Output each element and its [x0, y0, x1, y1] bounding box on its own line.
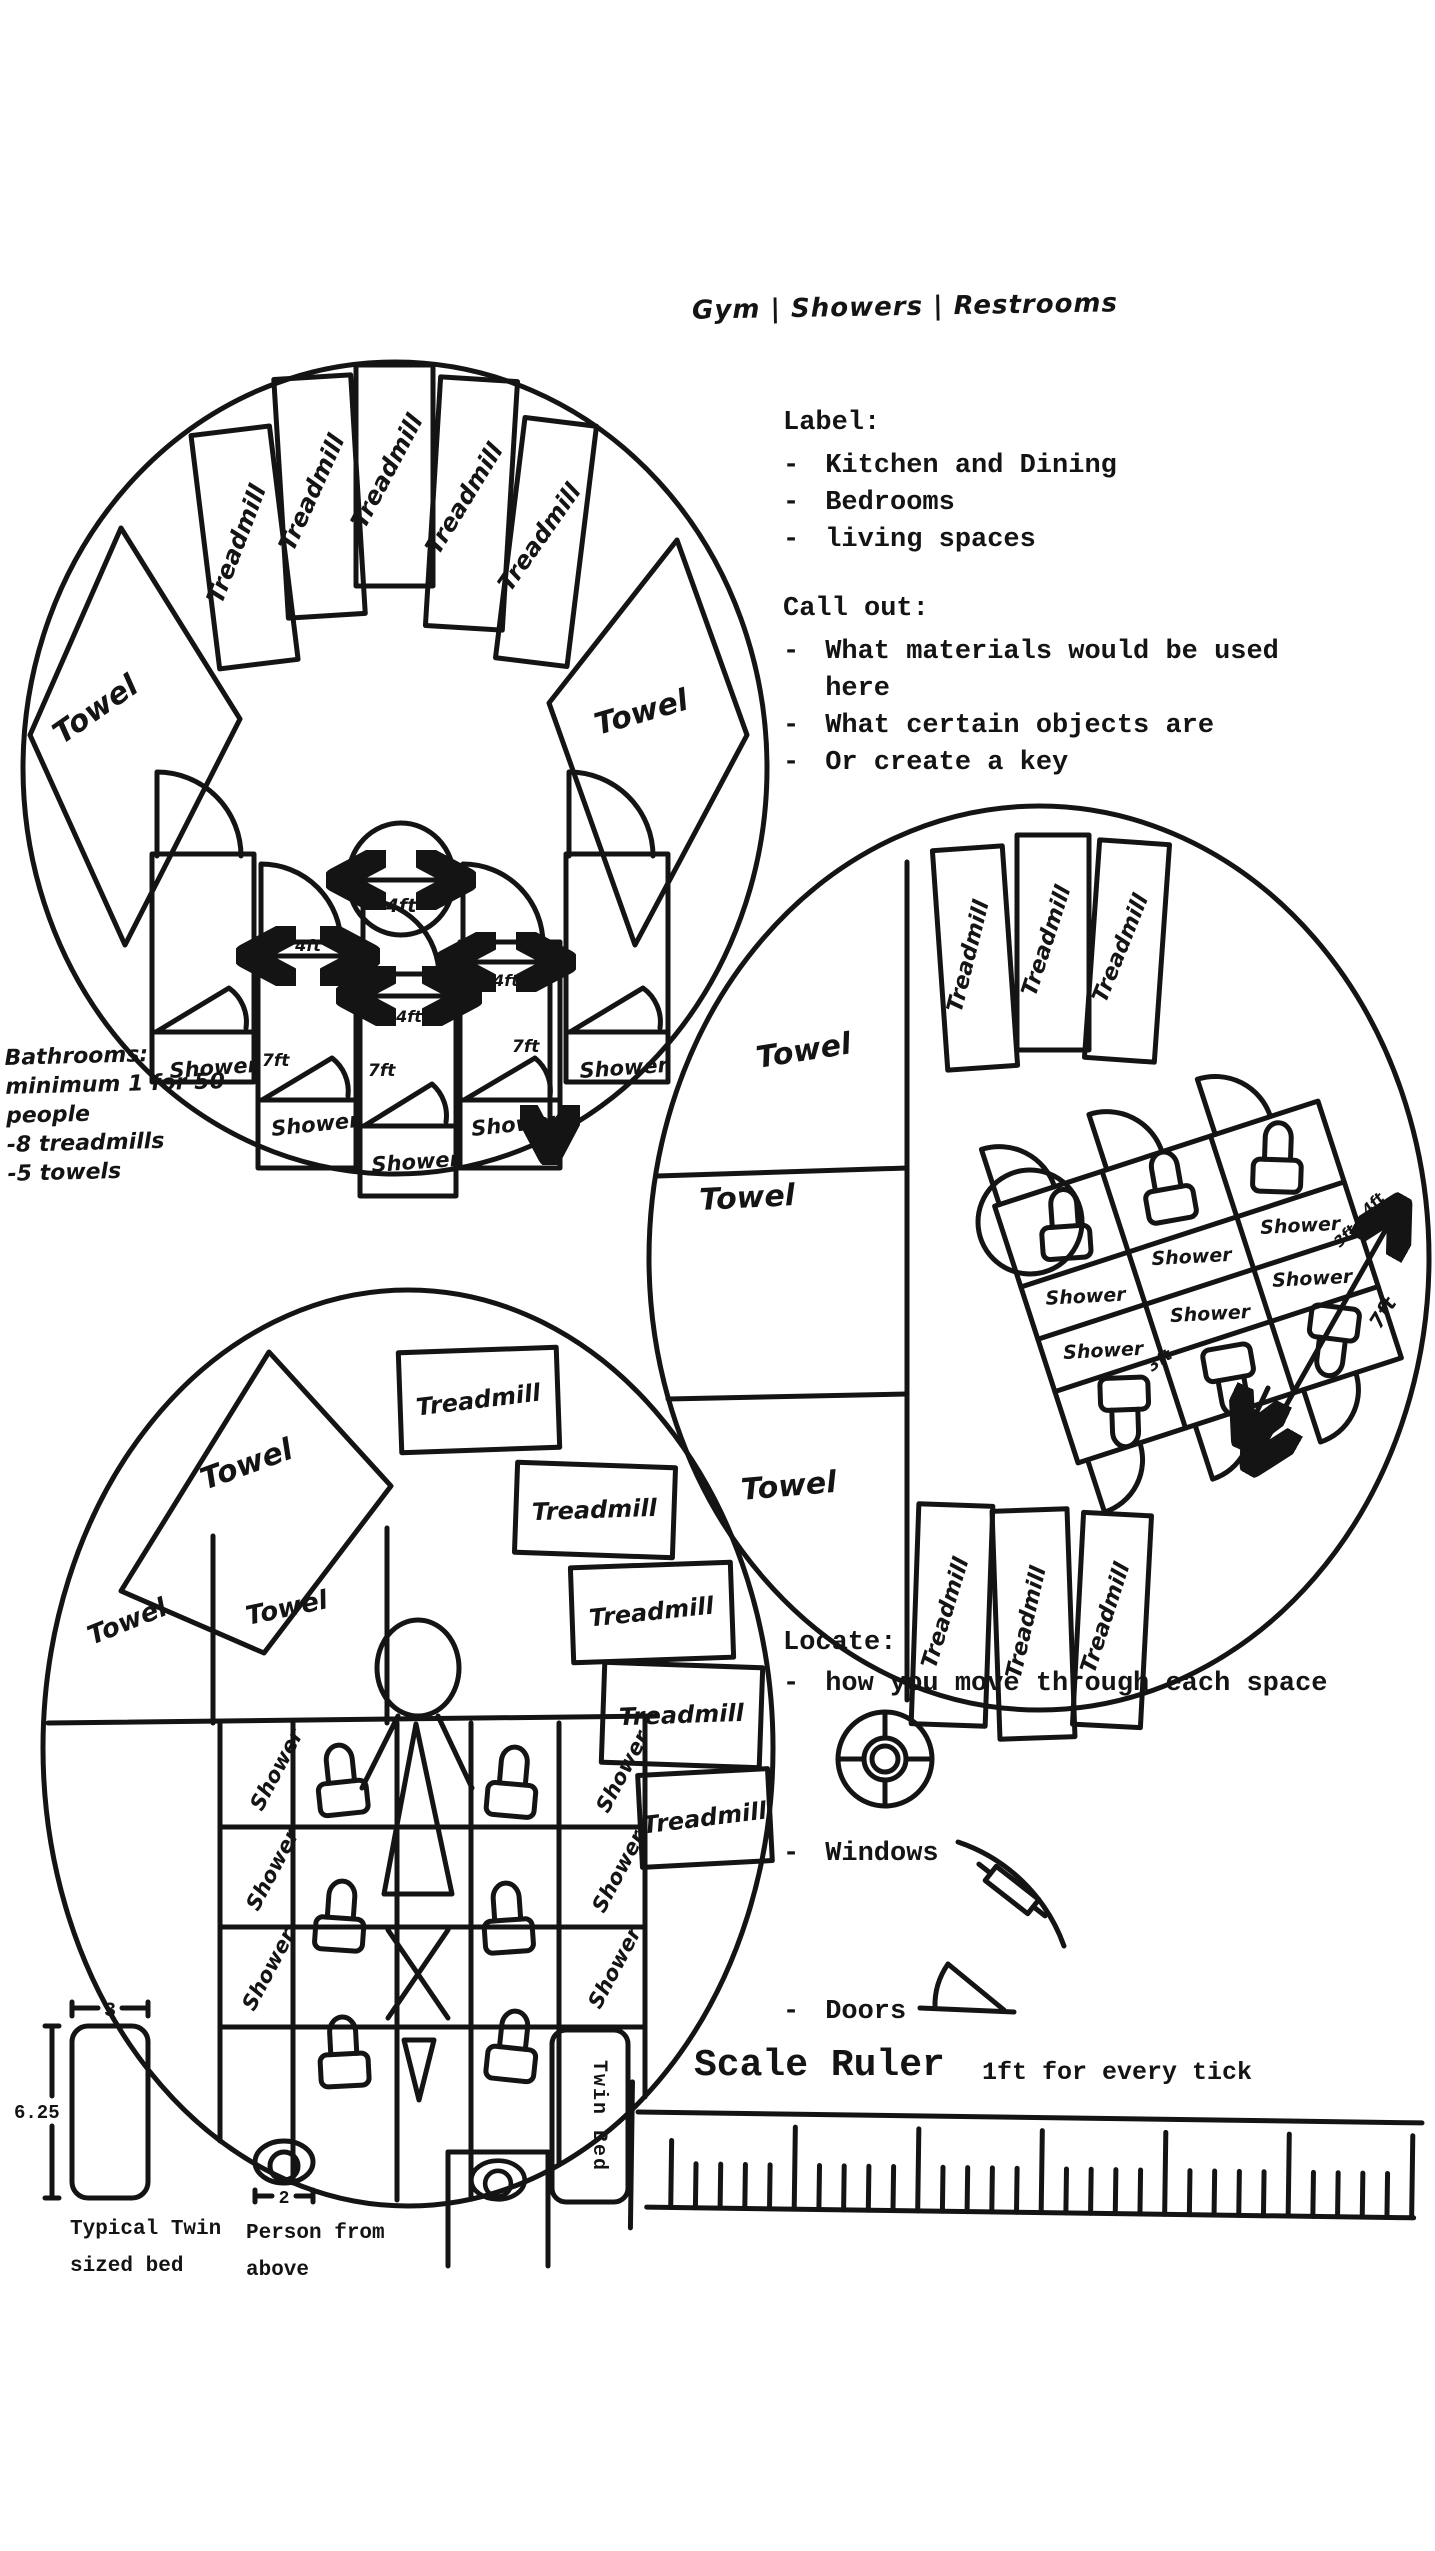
shower-label: Shower — [245, 1723, 309, 1814]
bullet-dash: - — [783, 448, 799, 485]
ruler-ticks — [671, 2125, 1413, 2217]
shower-label: Shower — [1045, 1283, 1128, 1309]
bullet-dash: - — [783, 1666, 799, 1703]
ruler-tick — [942, 2167, 943, 2211]
treadmill-label: Treadmill — [201, 480, 272, 607]
shower-label: Shower — [1151, 1244, 1234, 1270]
dim-7ft: 7ft — [368, 1061, 396, 1081]
ruler-tick — [1189, 2171, 1190, 2215]
ruler-bracket — [630, 2082, 632, 2228]
shower-label: Shower — [1169, 1301, 1252, 1327]
shower-label: Shower — [587, 1825, 651, 1916]
ruler-tick — [1313, 2172, 1314, 2216]
twin-bed-label: Twin Bed — [587, 2060, 610, 2172]
ruler-tick — [1288, 2134, 1289, 2216]
toilet-icon — [1138, 1148, 1197, 1224]
toilet-icon — [1252, 1122, 1302, 1193]
shower-label: Shower — [1272, 1266, 1355, 1292]
dim-3ft: 3ft — [1143, 1344, 1176, 1375]
door-arc — [363, 900, 439, 976]
ruler-tick — [1263, 2172, 1264, 2216]
wall-line — [48, 1716, 655, 1723]
treadmill-unit: Treadmill — [345, 365, 433, 586]
towel-label: Towel — [83, 1592, 172, 1651]
shower-stall: Shower — [152, 772, 260, 1083]
ruler-tick — [1239, 2171, 1240, 2215]
circle-plan-3: Towel Towel Towel Treadmill Treadmill Tr… — [43, 1290, 773, 2206]
toilet-icon — [1304, 1304, 1360, 1378]
treadmill-label: Treadmill — [415, 1378, 543, 1421]
treadmill-label: Treadmill — [619, 1699, 746, 1731]
dim-4ft: 4ft — [1357, 1188, 1388, 1219]
door-arc — [261, 864, 341, 944]
shower-stall: 4ft 7ft Shower — [460, 864, 562, 1168]
ruler-tick — [770, 2165, 771, 2209]
ruler-tick — [1165, 2132, 1166, 2214]
treadmill-label: Treadmill — [917, 1554, 975, 1671]
person-caption: Person from above — [246, 2216, 386, 2290]
towel-label: Towel — [591, 683, 693, 743]
locate-heading: Locate: — [783, 1624, 896, 1662]
sketch-page: Treadmill Treadmill Treadmill Treadmill … — [0, 0, 1435, 2551]
room-outline — [43, 1290, 773, 2206]
towel-label: Towel — [754, 1026, 855, 1076]
list-item: -how you move through each space — [783, 1666, 1328, 1703]
door-arc — [157, 772, 241, 856]
treadmill-unit: Treadmill — [570, 1562, 733, 1663]
ruler-tick — [868, 2166, 869, 2210]
callout-section: Call out: -What materials would be used … — [783, 590, 1383, 782]
list-item: -Or create a key — [783, 745, 1383, 782]
callout-list: -What materials would be used here -What… — [783, 634, 1383, 782]
wall-line — [668, 1394, 907, 1399]
shower-stall: Shower — [566, 772, 670, 1083]
ruler-baseline — [647, 2207, 1414, 2218]
shower-label: Shower — [1260, 1213, 1343, 1239]
locate-item-windows: -Windows — [783, 1830, 939, 1873]
bullet-dash: - — [783, 1994, 799, 2031]
locate-item-move: -how you move through each space — [783, 1660, 1328, 1703]
circle-plan-2: Towel Towel Towel Treadmill Treadmill Tr… — [649, 806, 1429, 1739]
bullet-dash: - — [783, 634, 799, 708]
treadmill-unit: Treadmill — [398, 1347, 559, 1452]
dim-7ft: 7ft — [1364, 1291, 1402, 1332]
shower-label: Shower — [371, 1147, 463, 1177]
treadmill-label: Treadmill — [1017, 882, 1076, 999]
ruler-tick — [1091, 2169, 1092, 2213]
ruler-tick — [967, 2168, 968, 2212]
ruler-title: Scale Ruler — [694, 2044, 945, 2087]
door-arc — [569, 772, 653, 856]
treadmill-unit: Treadmill — [1084, 840, 1170, 1062]
door-arc — [1088, 1443, 1157, 1512]
ruler-tick — [794, 2127, 795, 2209]
towel-label: Towel — [699, 1178, 797, 1218]
ruler-tick — [1115, 2170, 1116, 2214]
bullet-dash: - — [783, 522, 799, 559]
label-list: -Kitchen and Dining -Bedrooms -living sp… — [783, 448, 1343, 559]
shower-label: Shower — [583, 1921, 647, 2012]
ruler-tick — [819, 2166, 820, 2210]
ruler-tick — [1140, 2170, 1141, 2214]
shower-block: Shower Shower Shower Shower Shower Showe… — [977, 1046, 1419, 1517]
treadmill-unit: Treadmill — [638, 1769, 773, 1868]
toilet-icon — [481, 1881, 534, 1953]
ruler-tick — [918, 2129, 919, 2211]
treadmill-unit: Treadmill — [932, 846, 1018, 1070]
ruler-tick — [893, 2167, 894, 2211]
bullet-dash: - — [783, 745, 799, 782]
dim-4ft: 4ft — [492, 971, 520, 990]
door-arc — [981, 1132, 1054, 1205]
ruler-top-line — [638, 2112, 1422, 2123]
treadmill-label: Treadmill — [1076, 1559, 1135, 1676]
toilet-icon — [1100, 1377, 1150, 1448]
treadmill-label: Treadmill — [1088, 890, 1154, 1006]
dim-4ft: 4ft — [294, 936, 322, 955]
ruler-tick — [745, 2164, 746, 2208]
ruler-tick — [695, 2164, 696, 2208]
floor-plan-art: Treadmill Treadmill Treadmill Treadmill … — [0, 0, 1435, 2551]
twin-bed-box: Twin Bed — [552, 2030, 628, 2202]
list-item: -What materials would be used here — [783, 634, 1383, 708]
ruler-tick — [1412, 2136, 1413, 2218]
list-item: -Kitchen and Dining — [783, 448, 1343, 485]
toilet-icon — [314, 1879, 367, 1951]
person-box — [448, 2152, 548, 2266]
ruler-tick — [1362, 2173, 1363, 2217]
ruler-tick — [844, 2166, 845, 2210]
circulation-icon — [838, 1712, 932, 1806]
treadmill-label: Treadmill — [532, 1494, 659, 1526]
towel-station: Towel — [549, 540, 747, 945]
list-item: -Windows — [783, 1836, 939, 1873]
legend-bed: 3 6.25 — [14, 2000, 148, 2198]
list-item: -living spaces — [783, 522, 1343, 559]
dim-arrow — [1262, 1222, 1390, 1448]
toilet-icon — [485, 2009, 540, 2083]
bed-length-dim: 6.25 — [14, 2102, 60, 2124]
list-item: -Bedrooms — [783, 485, 1343, 522]
door-symbol-icon — [920, 1964, 1014, 2012]
ruler-tick — [1016, 2168, 1017, 2212]
label-section: Label: -Kitchen and Dining -Bedrooms -li… — [783, 404, 1343, 559]
shower-stall: 4ft 7ft Shower — [360, 900, 462, 1196]
towel-label: Towel — [740, 1465, 839, 1508]
bullet-dash: - — [783, 485, 799, 522]
treadmill-label: Treadmill — [641, 1796, 769, 1839]
label-heading: Label: — [783, 404, 1343, 442]
bathroom-notes: Bathrooms: minimum 1 for 50 people -8 tr… — [4, 1036, 308, 1189]
door-arc — [1197, 1061, 1270, 1134]
treadmill-label: Treadmill — [943, 897, 995, 1015]
bed-caption: Typical Twin sized bed — [70, 2212, 240, 2286]
ruler-subtitle: 1ft for every tick — [982, 2058, 1252, 2087]
bullet-dash: - — [783, 708, 799, 745]
shower-label: Shower — [579, 1053, 671, 1083]
bullet-dash: - — [783, 1836, 799, 1873]
ruler-tick — [1041, 2131, 1042, 2213]
ruler-tick — [1214, 2171, 1215, 2215]
toilet-icon — [1039, 1188, 1092, 1260]
ruler-tick — [1387, 2173, 1388, 2217]
treadmill-label: Treadmill — [273, 429, 351, 555]
list-item: -Doors — [783, 1994, 906, 2031]
ruler-tick — [671, 2140, 672, 2207]
door-arc — [1303, 1373, 1372, 1442]
dim-7ft: 7ft — [512, 1037, 540, 1057]
toilet-icon — [486, 1745, 540, 1818]
shower-label: Shower — [1063, 1338, 1146, 1364]
treadmill-unit: Treadmill — [992, 1509, 1075, 1739]
locate-heading-row: Locate: — [783, 1624, 896, 1662]
window-symbol-icon — [958, 1842, 1064, 1946]
ruler-tick — [992, 2168, 993, 2212]
bed-width-dim: 3 — [104, 2000, 116, 2023]
ruler-tick — [720, 2164, 721, 2208]
toilet-icon — [314, 1743, 369, 1817]
legend-person: 2 — [255, 2141, 313, 2209]
wall-line — [657, 1168, 907, 1176]
ruler-tick — [1066, 2169, 1067, 2213]
treadmill-label: Treadmill — [588, 1592, 716, 1633]
notes-line: minimum 1 for 50 people — [5, 1065, 306, 1131]
towel-label: Towel — [47, 668, 146, 752]
dim-4ft: 4ft — [395, 1007, 423, 1026]
treadmill-unit: Treadmill — [514, 1462, 675, 1557]
callout-heading: Call out: — [783, 590, 1383, 628]
ruler-tick — [1338, 2173, 1339, 2217]
list-item: -What certain objects are — [783, 708, 1383, 745]
locate-item-doors: -Doors — [783, 1988, 906, 2031]
door-arc — [463, 864, 543, 944]
person-width-dim: 2 — [279, 2189, 290, 2209]
scale-ruler — [630, 2082, 1422, 2239]
treadmill-unit: Treadmill — [1017, 835, 1089, 1050]
